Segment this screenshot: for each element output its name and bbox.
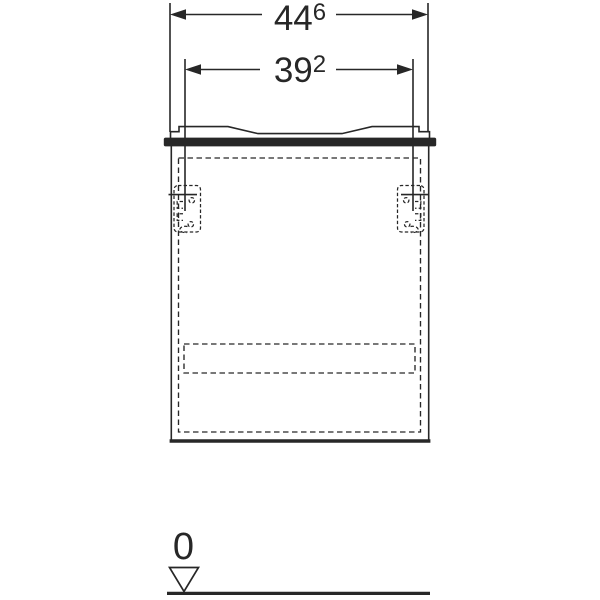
hidden-lines — [179, 158, 421, 432]
dimension-bracket-spacing: 392 — [185, 51, 413, 211]
arrowhead-right-icon — [397, 64, 413, 75]
floor-datum: 0 — [167, 526, 430, 593]
door-panel-hidden-outline — [179, 158, 421, 432]
washbasin-top — [164, 127, 436, 147]
dimension-value-overall-width: 446 — [274, 0, 326, 38]
datum-zero-label: 0 — [173, 526, 194, 568]
arrowhead-left-icon — [170, 9, 186, 20]
internal-shelf-hidden-outline — [184, 344, 415, 373]
arrowhead-left-icon — [185, 64, 201, 75]
cabinet-body — [170, 146, 431, 441]
datum-triangle-icon — [170, 568, 199, 592]
technical-drawing-canvas: 446 392 — [0, 0, 600, 600]
washbasin-rim-band — [164, 138, 436, 147]
dimension-value-bracket-spacing: 392 — [274, 51, 326, 90]
washbasin-profile — [171, 127, 430, 138]
dimension-drawing-svg: 446 392 — [0, 0, 600, 600]
arrowhead-right-icon — [412, 9, 428, 20]
